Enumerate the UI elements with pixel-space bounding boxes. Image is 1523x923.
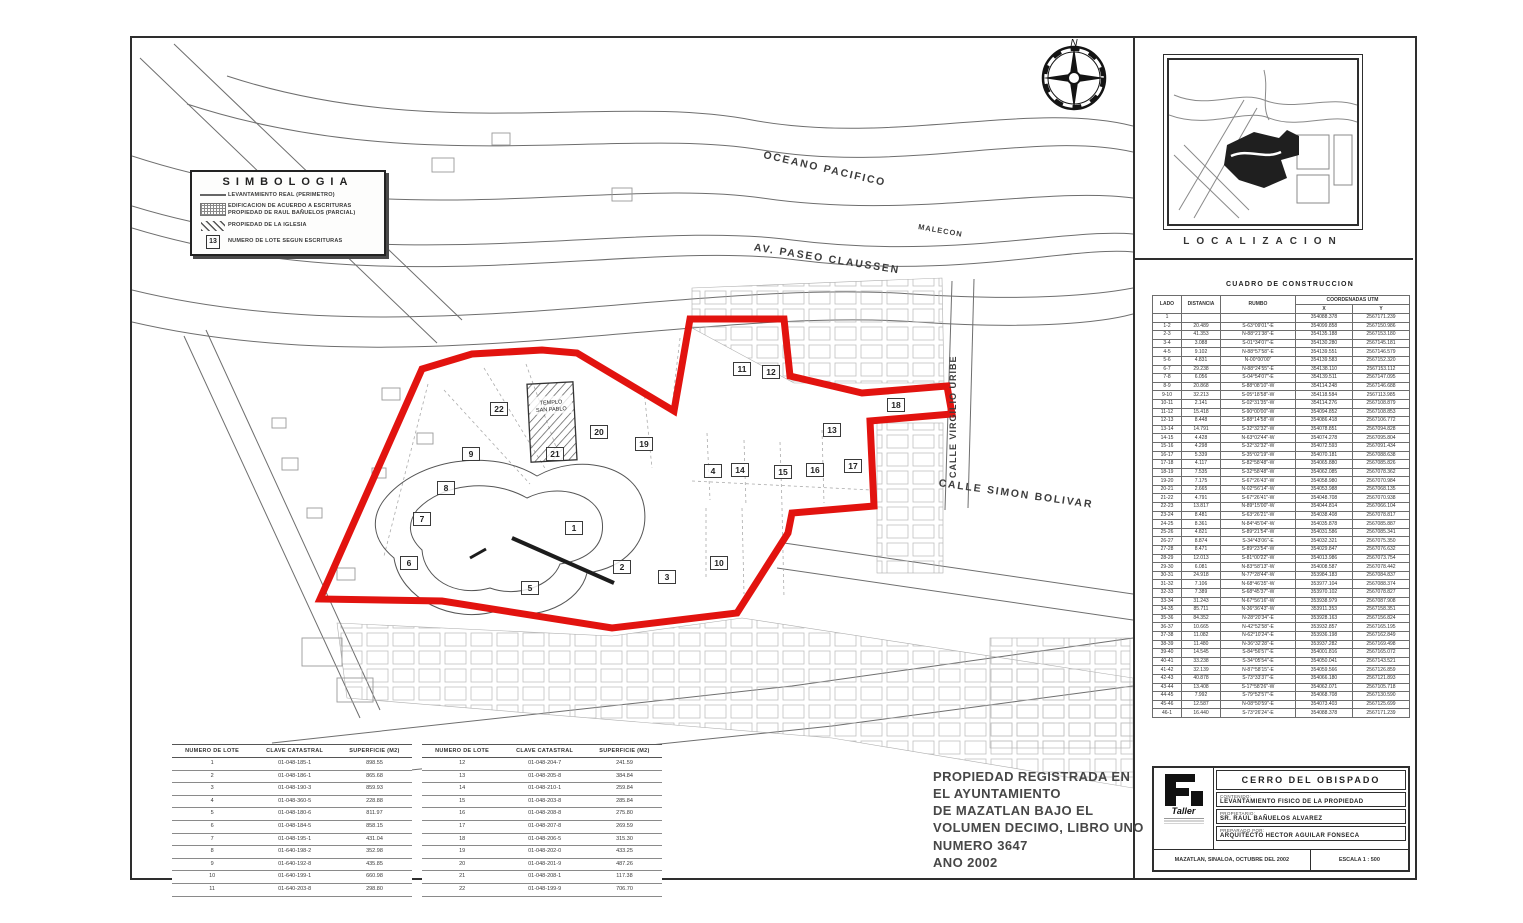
table-cell: 39-40 [1153,649,1182,658]
cuadro-rows: 1354088.3782567171.2391-220.489S-63°09'0… [1153,314,1410,718]
table-row: 46-116.440S-73°26'24"-E354088.3782567171… [1153,709,1410,718]
table-cell: 354139.583 [1296,356,1353,365]
table-cell: 9.102 [1182,348,1221,357]
table-cell: 1 [172,758,252,771]
table-cell: 354135.188 [1296,331,1353,340]
table-cell: 17 [422,820,502,833]
legend-item-label: PROPIEDAD DE LA IGLESIA [228,222,307,229]
table-row: 37-3811.082N-62°10'24"-E353936.198256716… [1153,631,1410,640]
table-cell: 865.68 [337,770,412,783]
table-cell: 2567121.893 [1353,674,1410,683]
table-cell: 23-24 [1153,511,1182,520]
table-cell: 01-048-208-1 [502,871,587,884]
table-row: 44-457.992S-79°52'57"-E354068.7082567130… [1153,692,1410,701]
table-row: 1501-048-203-8285.84 [422,795,662,808]
table-row: 2101-048-208-1117.38 [422,871,662,884]
table-cell: 354118.584 [1296,391,1353,400]
table-cell: 18-19 [1153,468,1182,477]
table-cell: 435.85 [337,858,412,871]
table-row: 10-112.141S-02°31'35"-W354114.2762567108… [1153,399,1410,408]
table-cell: 354073.403 [1296,700,1353,709]
table-cell: 14.545 [1182,649,1221,658]
table-cell: 4.791 [1182,494,1221,503]
table-cell: 37-38 [1153,631,1182,640]
table-cell: 354088.378 [1296,314,1353,323]
lot-marker-2: 2 [613,560,631,574]
table-cell: 353932.857 [1296,623,1353,632]
lot-marker-3: 3 [658,570,676,584]
lot-marker-10: 10 [710,556,728,570]
table-cell: N-62°10'24"-E [1221,631,1296,640]
table-cell: 40.878 [1182,674,1221,683]
table-cell: 11-12 [1153,408,1182,417]
table-row: 1301-048-205-8384.84 [422,770,662,783]
table-cell: 354059.566 [1296,666,1353,675]
table-cell: 17-18 [1153,460,1182,469]
table-cell: 7-8 [1153,374,1182,383]
table-row: 2201-048-199-9706.70 [422,883,662,896]
lot-marker-5: 5 [521,581,539,595]
registry-text-block: PROPIEDAD REGISTRADA EN EL AYUNTAMIENTO … [933,768,1153,871]
table-cell: 31-32 [1153,580,1182,589]
table-cell: 01-048-190-3 [252,783,337,796]
table-cell: 20.489 [1182,322,1221,331]
legend-item-perimetro: LEVANTAMIENTO REAL (PERIMETRO) [198,192,378,199]
table-cell: 8.361 [1182,520,1221,529]
table-row: 901-640-192-8435.85 [172,858,412,871]
table-cell: 10.665 [1182,623,1221,632]
table-cell: S-89°23'54"-W [1221,546,1296,555]
table-cell: 354050.041 [1296,657,1353,666]
table-cell: 40-41 [1153,657,1182,666]
table-cell: 354094.852 [1296,408,1353,417]
table-cell: 4.428 [1182,434,1221,443]
legend-item-label: NUMERO DE LOTE SEGUN ESCRITURAS [228,238,342,245]
col-numero-lote: NUMERO DE LOTE [422,745,502,758]
table-cell: 01-048-206-5 [502,833,587,846]
table-row: 34-3585.711N-36°36'43"-W353911.353256715… [1153,606,1410,615]
table-cell: 354053.988 [1296,485,1353,494]
table-cell: 84.352 [1182,614,1221,623]
table-row: 32-337.389S-68°45'37"-W353970.1022567078… [1153,589,1410,598]
table-cell: N-88°24'55"-E [1221,365,1296,374]
table-cell: 13.817 [1182,503,1221,512]
table-cell: 31.243 [1182,597,1221,606]
table-cell: 354001.816 [1296,649,1353,658]
table-cell: 2567105.718 [1353,683,1410,692]
table-row: 401-048-360-5228.88 [172,795,412,808]
table-cell: 2567075.350 [1353,537,1410,546]
crosshatch-symbol [200,203,226,216]
table-cell: 13-14 [1153,425,1182,434]
table-cell: 6.056 [1182,374,1221,383]
table-cell: S-79°52'57"-E [1221,692,1296,701]
table-cell: 01-640-199-1 [252,871,337,884]
table-cell: 13 [422,770,502,783]
table-cell: 354138.110 [1296,365,1353,374]
logo-mark-icon [1162,772,1206,808]
table-cell: 811.97 [337,808,412,821]
table-cell: 10 [172,871,252,884]
table-cell: 2567073.754 [1353,554,1410,563]
table-cell: 16-17 [1153,451,1182,460]
table-row: 15-164.298S-32°32'32"-W354072.5932567091… [1153,442,1410,451]
table-cell: 2567169.498 [1353,640,1410,649]
table-cell: 27-28 [1153,546,1182,555]
col-y: Y [1353,305,1410,314]
table-row: 8-920.868S-88°08'10"-W354114.2482567146.… [1153,382,1410,391]
table-row: 39-4014.545S-84°56'57"-E354001.816256716… [1153,649,1410,658]
table-row: 28-2912.013S-81°00'22"-W354013.986256707… [1153,554,1410,563]
table-cell: 2567165.195 [1353,623,1410,632]
legend-box: SIMBOLOGIA LEVANTAMIENTO REAL (PERIMETRO… [190,170,386,256]
table-cell: S-84°56'57"-E [1221,649,1296,658]
table-cell: 354139.511 [1296,374,1353,383]
compass-rose-icon: N [1043,38,1105,109]
table-cell: 9-10 [1153,391,1182,400]
table-cell: 01-048-203-8 [502,795,587,808]
table-cell: S-32°58'48"-W [1221,468,1296,477]
table-cell: 14-15 [1153,434,1182,443]
table-cell: 01-640-203-8 [252,883,337,896]
table-cell: 2567076.632 [1353,546,1410,555]
table-cell: 6 [172,820,252,833]
table-cell: 353970.102 [1296,589,1353,598]
table-cell: 859.93 [337,783,412,796]
legend-item-iglesia: PROPIEDAD DE LA IGLESIA [198,221,378,231]
table-cell: 354029.847 [1296,546,1353,555]
table-cell: 353984.183 [1296,571,1353,580]
table-row: 18-197.535S-32°58'48"-W354062.0852567078… [1153,468,1410,477]
table-cell: 2-3 [1153,331,1182,340]
propietario-row: PROPIETARIO: SR. RAUL BAÑUELOS ALVAREZ [1216,809,1406,824]
lot-marker-17: 17 [844,459,862,473]
table-cell: S-89°21'54"-W [1221,528,1296,537]
table-cell: N-67°56'16"-W [1221,597,1296,606]
parcel-texture [337,278,1133,788]
diagonal-hatch-symbol [201,221,225,231]
table-cell: 259.84 [587,783,662,796]
table-cell: 354058.980 [1296,477,1353,486]
table-cell: 2567108.853 [1353,408,1410,417]
table-cell: 43-44 [1153,683,1182,692]
table-cell: 6-7 [1153,365,1182,374]
table-cell: 269.59 [587,820,662,833]
table-cell: 36-37 [1153,623,1182,632]
table-cell: S-17°58'26"-W [1221,683,1296,692]
col-superficie: SUPERFICIE (M2) [337,745,412,758]
table-cell: 354032.321 [1296,537,1353,546]
table-row: 42-4340.878S-73°33'37"-E354066.180256712… [1153,674,1410,683]
col-lado: LADO [1153,296,1182,314]
table-cell: S-63°26'21"-W [1221,511,1296,520]
table-cell: 7.389 [1182,589,1221,598]
table-cell: 16.440 [1182,709,1221,718]
table-cell: S-82°58'48"-W [1221,460,1296,469]
table-row: 22-2313.817N-89°15'00"-W354044.814256706… [1153,503,1410,512]
table-cell: S-34°43'06"-E [1221,537,1296,546]
table-cell: 706.70 [587,883,662,896]
table-cell: 13.408 [1182,683,1221,692]
registry-line: DE MAZATLAN BAJO EL [933,802,1153,819]
table-row: 13-1414.791S-32°32'32"-W354078.851256709… [1153,425,1410,434]
table-cell: 4-5 [1153,348,1182,357]
table-cell: 22-23 [1153,503,1182,512]
lot-marker-20: 20 [590,425,608,439]
table-cell: 2567150.986 [1353,322,1410,331]
localizacion-property-blob [1224,130,1299,188]
table-cell: 18 [422,833,502,846]
table-cell: 858.15 [337,820,412,833]
lot-marker-13: 13 [823,423,841,437]
table-cell: 2567091.434 [1353,442,1410,451]
table-row: 3-43.088S-01°34'07"-E354130.2802567145.1… [1153,339,1410,348]
table-cell: 8.448 [1182,417,1221,426]
table-cell: 2567147.095 [1353,374,1410,383]
table-cell: S-81°00'22"-W [1221,554,1296,563]
templo-label-line1: TEMPLO [540,399,564,406]
lot-marker-8: 8 [437,481,455,495]
table-cell: S-67°26'43"-W [1221,477,1296,486]
table-cell: 2567088.374 [1353,580,1410,589]
table-row: 19-207.175S-67°26'43"-W354058.9802567070… [1153,477,1410,486]
table-cell: 4.831 [1182,356,1221,365]
legend-item-numero-lote: 13 NUMERO DE LOTE SEGUN ESCRITURAS [198,235,378,249]
table-cell: 298.80 [337,883,412,896]
table-cell: S-05°18'58"-W [1221,391,1296,400]
table-cell: S-35°02'19"-W [1221,451,1296,460]
table-cell: 2567126.859 [1353,666,1410,675]
table-cell: 2567162.849 [1353,631,1410,640]
scanned-plan-sheet: TEMPLO SAN PABLO N OCEANO PACIFICO MALEC… [0,0,1523,923]
table-row: 24-258.361N-84°45'04"-W354035.8782567085… [1153,520,1410,529]
scale-note: ESCALA 1 : 500 [1311,850,1408,870]
preparado-value: ARQUITECTO HECTOR AGUILAR FONSECA [1220,833,1402,839]
table-cell: 2567108.879 [1353,399,1410,408]
table-row: 40-4133.238S-34°05'54"-E354050.041256714… [1153,657,1410,666]
registry-line: PROPIEDAD REGISTRADA EN [933,768,1153,785]
table-cell: 14 [422,783,502,796]
table-cell: 353938.979 [1296,597,1353,606]
col-numero-lote: NUMERO DE LOTE [172,745,252,758]
col-coordenadas: COORDENADAS UTM [1296,296,1410,305]
firm-logo: Taller [1154,768,1214,849]
registry-line: VOLUMEN DECIMO, LIBRO UNO [933,819,1153,836]
table-cell: 2567070.938 [1353,494,1410,503]
table-cell: 01-048-180-6 [252,808,337,821]
table-cell: 2567158.351 [1353,606,1410,615]
table-cell: S-68°45'37"-W [1221,589,1296,598]
lot-marker-7: 7 [413,512,431,526]
table-row: 23-248.481S-63°26'21"-W354038.4082567078… [1153,511,1410,520]
table-cell: N-77°28'44"-W [1221,571,1296,580]
culdesac-road [375,460,645,614]
propietario-value: SR. RAUL BAÑUELOS ALVAREZ [1220,816,1402,822]
table-row: 45-4612.587N-08°50'59"-E354073.403256712… [1153,700,1410,709]
table-cell: 22 [422,883,502,896]
table-cell: 29-30 [1153,563,1182,572]
lot-table-a-rows: 101-048-185-1898.55201-048-186-1865.6830… [172,758,412,897]
cuadro-de-construccion-table: LADO DISTANCIA RUMBO COORDENADAS UTM X Y… [1152,295,1410,718]
table-cell: S-73°33'37"-E [1221,674,1296,683]
table-cell: 2567085.826 [1353,460,1410,469]
table-cell: 354038.408 [1296,511,1353,520]
table-row: 11-1215.418S-90°00'00"-W354094.852256710… [1153,408,1410,417]
lot-marker-16: 16 [806,463,824,477]
table-cell: S-01°34'07"-E [1221,339,1296,348]
col-clave: CLAVE CATASTRAL [252,745,337,758]
table-cell: N-42°52'58"-E [1221,623,1296,632]
table-cell: 2567085.341 [1353,528,1410,537]
table-cell: 35-36 [1153,614,1182,623]
table-cell: 20-21 [1153,485,1182,494]
localizacion-inset [1163,54,1363,230]
lot-marker-21: 21 [546,447,564,461]
lot-marker-12: 12 [762,365,780,379]
table-cell: 01-048-205-8 [502,770,587,783]
legend-item-edificacion: EDIFICACION DE ACUERDO A ESCRITURAS PROP… [198,203,378,217]
table-row: 301-048-190-3859.93 [172,783,412,796]
table-cell: 25-26 [1153,528,1182,537]
table-cell: 228.88 [337,795,412,808]
table-cell: 354114.276 [1296,399,1353,408]
table-cell: 24-25 [1153,520,1182,529]
table-cell: 3 [172,783,252,796]
table-cell: 2567113.985 [1353,391,1410,400]
table-cell: 354065.880 [1296,460,1353,469]
table-cell: 12 [422,758,502,771]
table-cell: 2567078.362 [1353,468,1410,477]
table-cell: N-84°45'04"-W [1221,520,1296,529]
table-cell: 8.874 [1182,537,1221,546]
table-cell: 41-42 [1153,666,1182,675]
table-cell: S-88°08'10"-W [1221,382,1296,391]
table-row: 12-138.448S-88°14'58"-W354086.4182567106… [1153,417,1410,426]
table-cell: 01-048-210-1 [502,783,587,796]
table-cell: 275.80 [587,808,662,821]
col-superficie: SUPERFICIE (M2) [587,745,662,758]
table-cell: S-32°32'32"-W [1221,425,1296,434]
localizacion-minimap [1169,60,1359,226]
table-cell: 3.088 [1182,339,1221,348]
table-cell: 46-1 [1153,709,1182,718]
table-row: 2001-048-201-9487.26 [422,858,662,871]
table-row: 38-3911.480N-36°32'28"-E353937.282256716… [1153,640,1410,649]
table-cell: 2567171.239 [1353,314,1410,323]
legend-item-label: EDIFICACION DE ACUERDO A ESCRITURAS PROP… [228,203,368,217]
table-cell: 15.418 [1182,408,1221,417]
table-row: 1901-048-202-0433.25 [422,846,662,859]
table-cell: 384.84 [587,770,662,783]
table-cell: 01-048-204-7 [502,758,587,771]
table-cell: 5-6 [1153,356,1182,365]
table-cell: 85.711 [1182,606,1221,615]
lot-marker-22: 22 [490,402,508,416]
table-cell: 2567078.442 [1353,563,1410,572]
table-cell: N-68°46'35"-W [1221,580,1296,589]
table-cell: 354088.378 [1296,709,1353,718]
table-row: 43-4413.408S-17°58'26"-W354062.071256710… [1153,683,1410,692]
table-cell: 352.98 [337,846,412,859]
heavy-wall-lines [470,538,614,583]
table-cell: 2 [172,770,252,783]
table-cell: 32.139 [1182,666,1221,675]
table-cell: 9 [172,858,252,871]
table-cell: S-90°00'00"-W [1221,408,1296,417]
table-cell: 2567130.590 [1353,692,1410,701]
table-row: 801-640-198-2352.98 [172,846,412,859]
table-cell: 354008.587 [1296,563,1353,572]
table-cell: 2567106.772 [1353,417,1410,426]
table-cell [1221,314,1296,323]
table-cell: 2567171.239 [1353,709,1410,718]
table-cell: S-73°26'24"-E [1221,709,1296,718]
table-cell: 5 [172,808,252,821]
lot-marker-19: 19 [635,437,653,451]
table-cell: N-88°21'38"-E [1221,331,1296,340]
table-cell: S-32°32'32"-W [1221,442,1296,451]
table-cell: 354044.814 [1296,503,1353,512]
table-cell: 354031.586 [1296,528,1353,537]
table-cell: 354130.280 [1296,339,1353,348]
table-cell: 354139.551 [1296,348,1353,357]
table-cell: N-83°58'13"-W [1221,563,1296,572]
table-cell: 2567146.579 [1353,348,1410,357]
table-cell: 45-46 [1153,700,1182,709]
table-cell: 01-048-202-0 [502,846,587,859]
table-cell: 354068.708 [1296,692,1353,701]
lot-marker-9: 9 [462,447,480,461]
lot-number-symbol: 13 [206,235,220,249]
table-row: 17-184.117S-82°58'48"-W354065.8802567085… [1153,460,1410,469]
table-cell: N-02°56'14"-W [1221,485,1296,494]
table-cell: 26-27 [1153,537,1182,546]
table-cell: S-67°26'41"-W [1221,494,1296,503]
table-cell: 353928.163 [1296,614,1353,623]
table-cell: 21 [422,871,502,884]
table-row: 2-341.353N-88°21'38"-E354135.1882567153.… [1153,331,1410,340]
lot-marker-18: 18 [887,398,905,412]
table-cell: 33.238 [1182,657,1221,666]
table-cell: 354048.708 [1296,494,1353,503]
table-cell: 354013.986 [1296,554,1353,563]
table-cell: N-36°36'43"-W [1221,606,1296,615]
table-cell: 34-35 [1153,606,1182,615]
table-row: 7-86.056S-04°54'07"-E354139.5112567147.0… [1153,374,1410,383]
table-cell: 354114.248 [1296,382,1353,391]
table-cell: 433.25 [587,846,662,859]
table-cell: 44-45 [1153,692,1182,701]
table-cell: 2567153.112 [1353,365,1410,374]
table-row: 30-3124.918N-77°28'44"-W353984.183256708… [1153,571,1410,580]
table-cell: 2567152.320 [1353,356,1410,365]
place-date: MAZATLAN, SINALOA, OCTUBRE DEL 2002 [1154,850,1311,870]
table-cell: 10-11 [1153,399,1182,408]
table-row: 1801-048-206-5315.30 [422,833,662,846]
table-row: 25-264.821S-89°21'54"-W354031.5862567085… [1153,528,1410,537]
table-cell: 01-048-207-8 [502,820,587,833]
table-cell: 2567153.180 [1353,331,1410,340]
table-row: 35-3684.352N-28°20'34"-E353928.163256715… [1153,614,1410,623]
table-row: 31-327.106N-68°46'35"-W353977.1042567088… [1153,580,1410,589]
table-cell: 01-048-195-1 [252,833,337,846]
table-row: 41-4232.139N-87°58'15"-E354059.566256712… [1153,666,1410,675]
table-cell: 354062.071 [1296,683,1353,692]
table-cell: S-34°05'54"-E [1221,657,1296,666]
table-cell: 24.918 [1182,571,1221,580]
table-cell: 2.665 [1182,485,1221,494]
table-row: 27-288.471S-89°23'54"-W354029.8472567076… [1153,546,1410,555]
